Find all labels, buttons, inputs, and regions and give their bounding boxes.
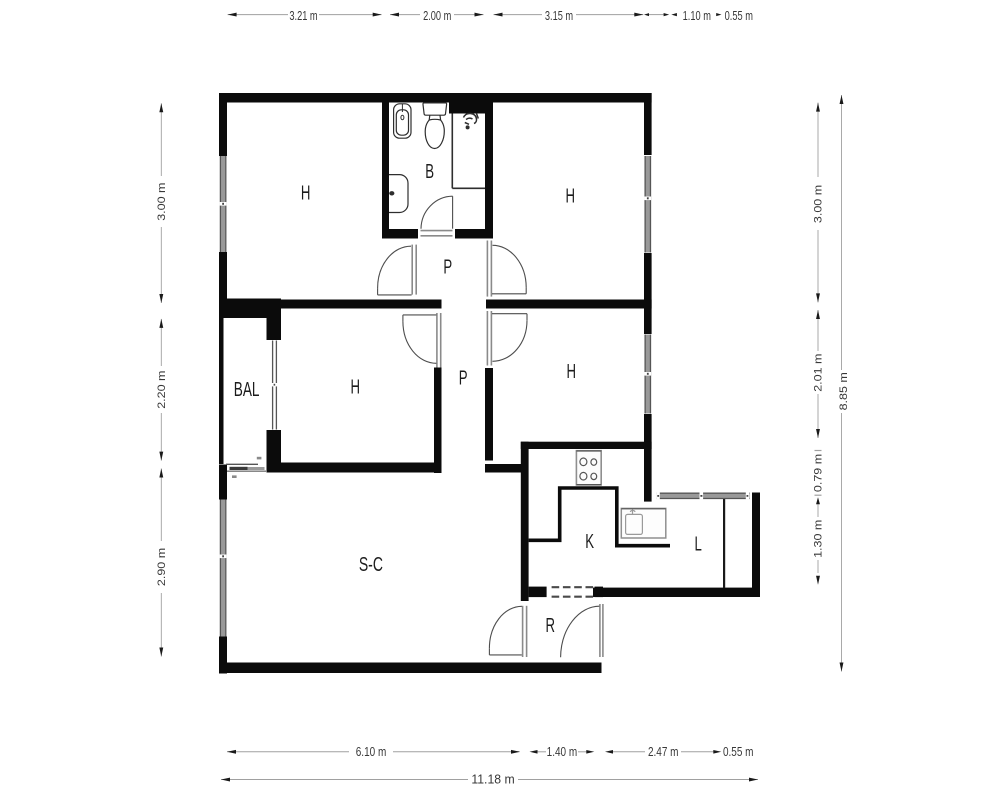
svg-text:8.85 m: 8.85 m (838, 372, 850, 410)
svg-text:S-C: S-C (359, 552, 383, 575)
svg-text:H: H (566, 360, 576, 382)
svg-text:2.47 m: 2.47 m (648, 746, 679, 759)
svg-text:BAL: BAL (234, 378, 260, 400)
svg-text:R: R (545, 614, 555, 636)
svg-text:2.20 m: 2.20 m (156, 371, 168, 409)
svg-text:0.55 m: 0.55 m (725, 10, 753, 24)
svg-text:B: B (425, 160, 434, 182)
svg-text:L: L (695, 533, 702, 555)
svg-text:P: P (459, 367, 468, 389)
svg-text:H: H (350, 376, 360, 398)
svg-text:0.55 m: 0.55 m (723, 746, 754, 759)
svg-text:H: H (566, 185, 576, 207)
svg-text:P: P (443, 256, 452, 278)
svg-text:1.30 m: 1.30 m (812, 520, 824, 558)
svg-text:K: K (585, 530, 594, 552)
svg-text:2.00 m: 2.00 m (423, 10, 451, 24)
svg-text:3.00 m: 3.00 m (812, 185, 824, 223)
svg-text:3.00 m: 3.00 m (156, 183, 168, 221)
svg-text:11.18 m: 11.18 m (471, 772, 514, 786)
svg-text:H: H (301, 182, 311, 204)
svg-text:3.15 m: 3.15 m (545, 10, 573, 24)
svg-text:1.40 m: 1.40 m (547, 746, 578, 759)
svg-text:2.01 m: 2.01 m (812, 354, 824, 392)
svg-text:2.90 m: 2.90 m (156, 548, 168, 586)
svg-text:3.21 m: 3.21 m (289, 10, 317, 24)
svg-text:0.79 m: 0.79 m (812, 454, 824, 492)
svg-text:6.10 m: 6.10 m (356, 746, 387, 759)
svg-text:1.10 m: 1.10 m (683, 10, 711, 24)
